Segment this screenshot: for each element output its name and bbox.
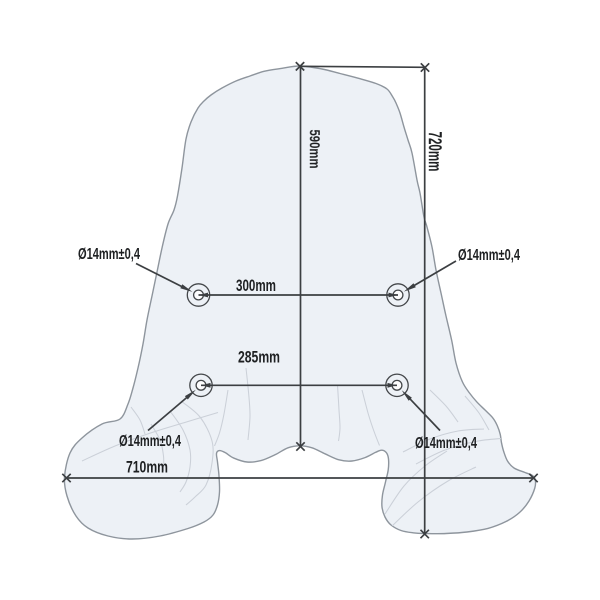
svg-text:Ø14mm±0,4: Ø14mm±0,4 — [415, 435, 477, 452]
svg-text:710mm: 710mm — [126, 458, 168, 477]
svg-text:720mm: 720mm — [425, 132, 446, 172]
svg-text:300mm: 300mm — [236, 276, 276, 295]
svg-text:Ø14mm±0,4: Ø14mm±0,4 — [119, 433, 181, 450]
svg-text:285mm: 285mm — [238, 348, 280, 367]
svg-text:Ø14mm±0,4: Ø14mm±0,4 — [458, 247, 520, 264]
svg-text:590mm: 590mm — [306, 130, 323, 169]
svg-text:Ø14mm±0,4: Ø14mm±0,4 — [78, 246, 140, 263]
